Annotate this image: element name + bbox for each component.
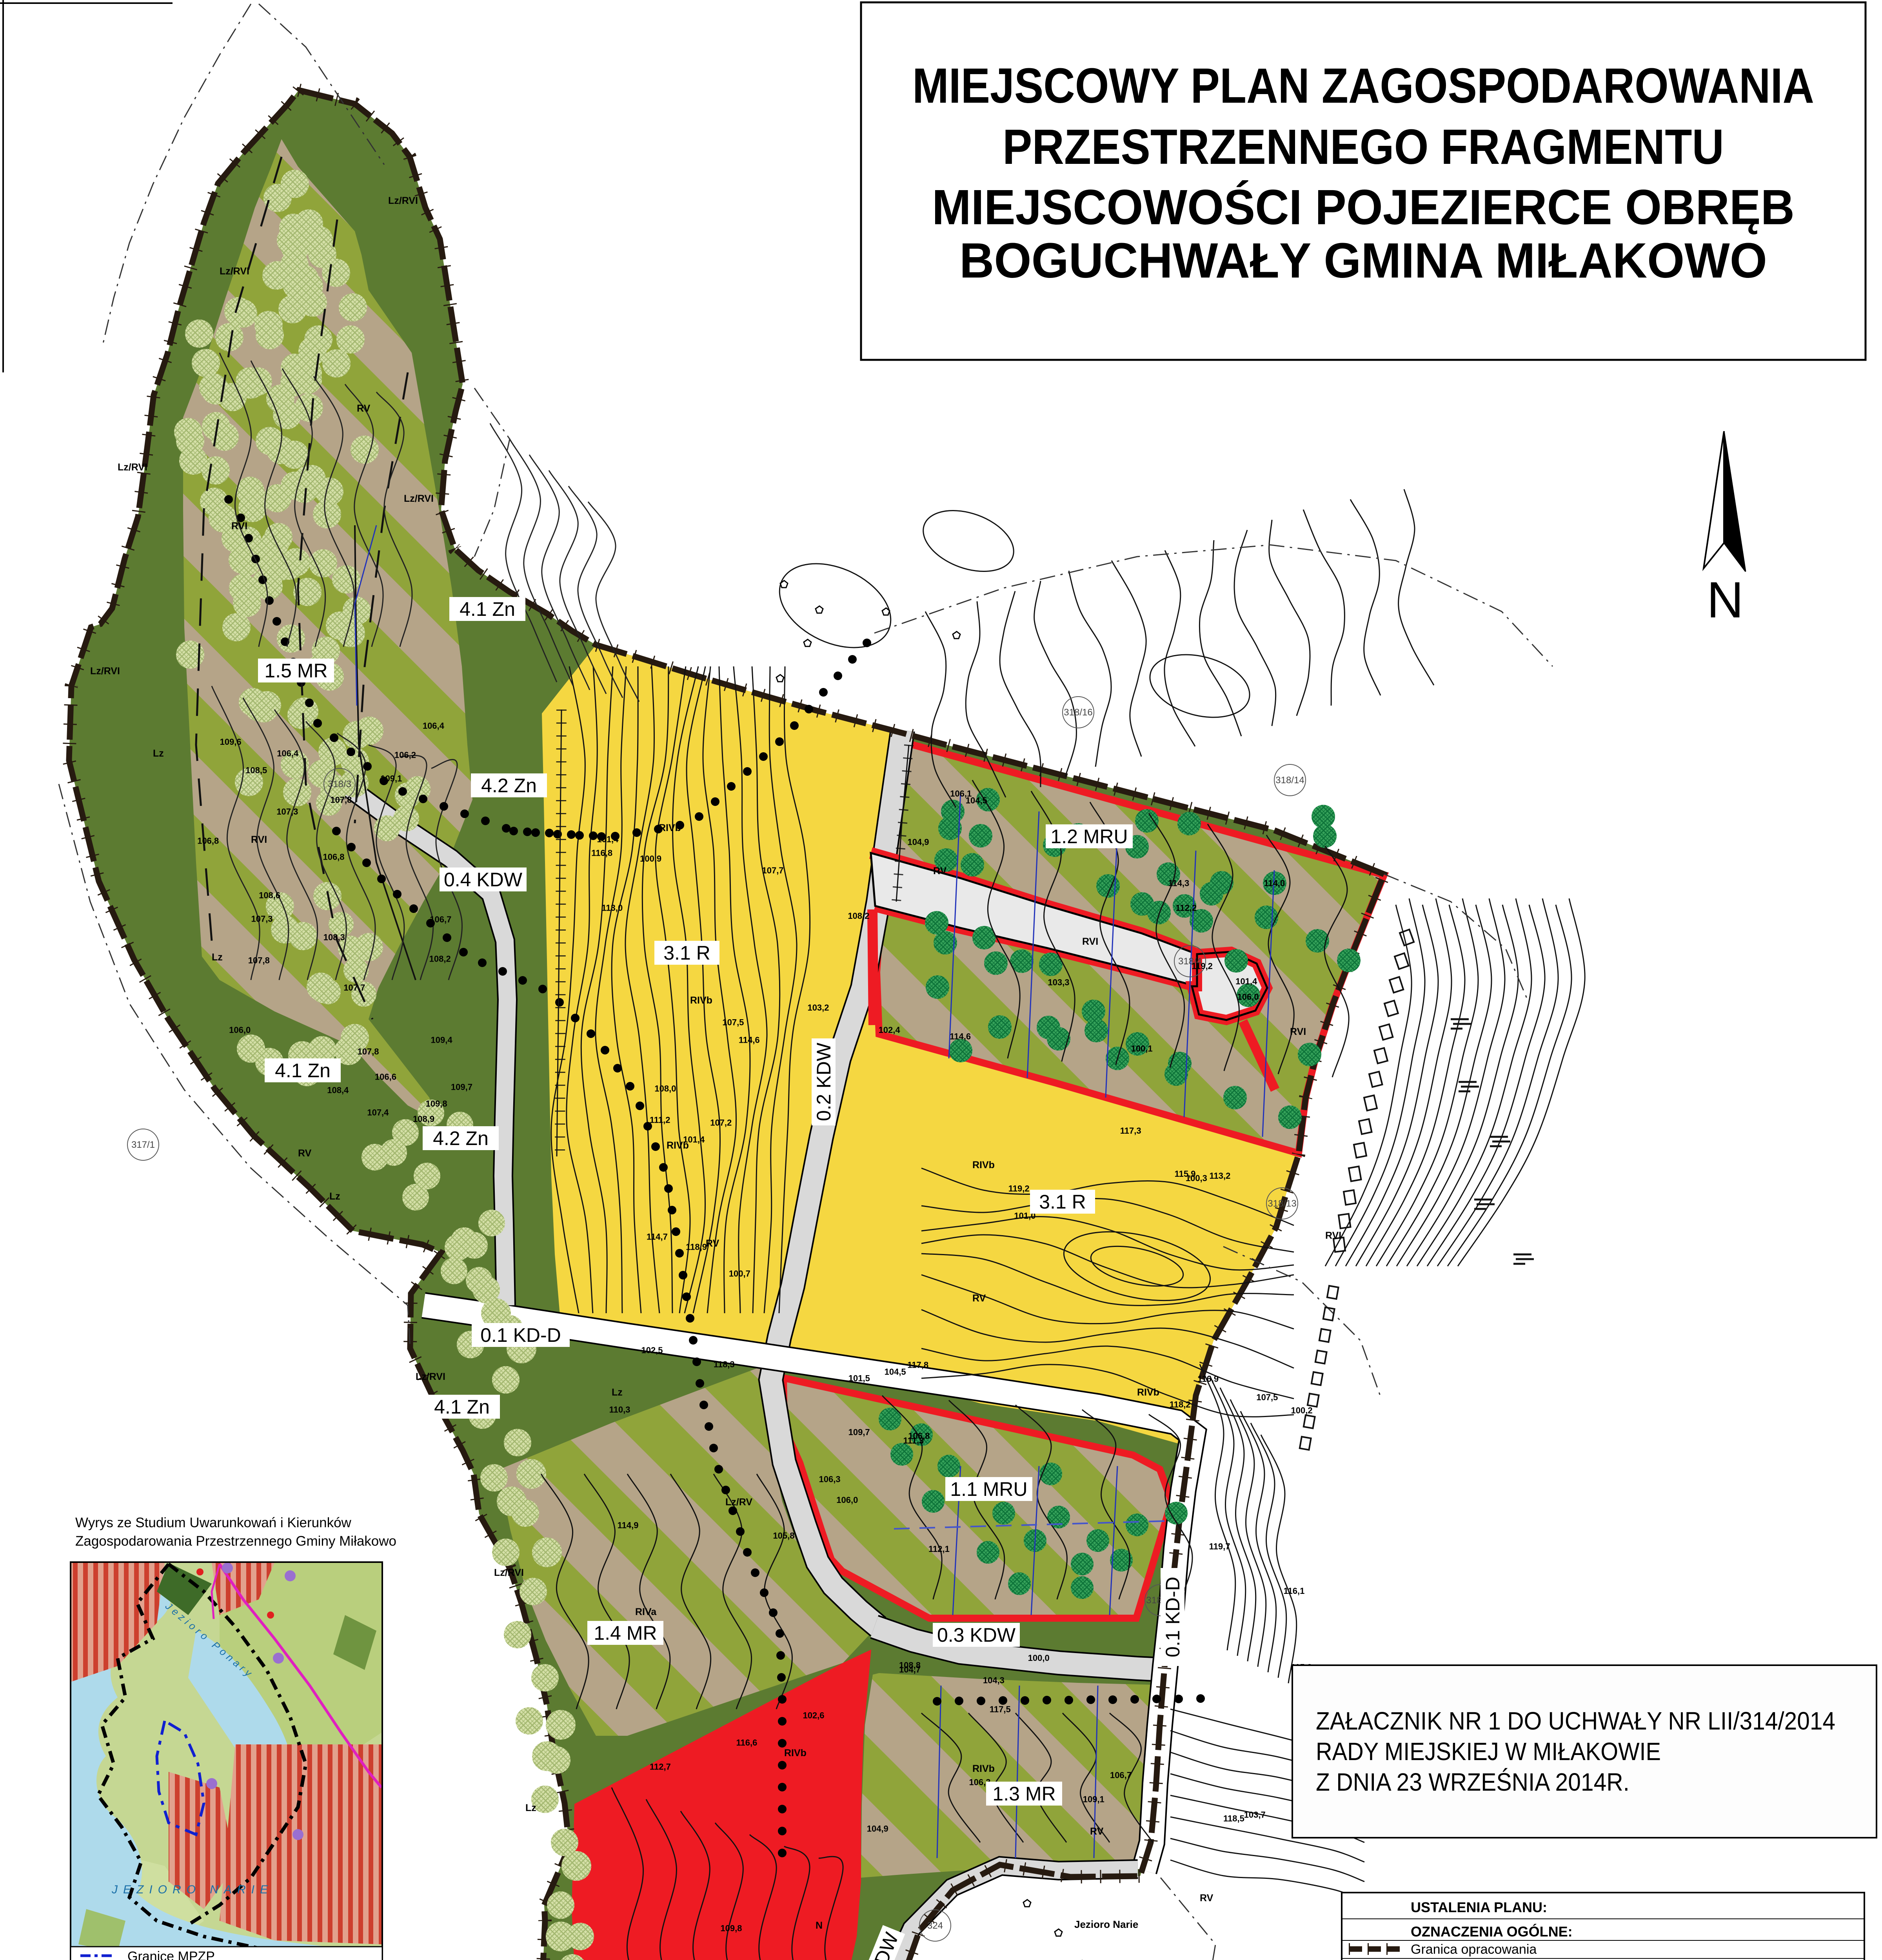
svg-text:Jezioro Narie: Jezioro Narie <box>1074 1918 1138 1930</box>
svg-text:116,6: 116,6 <box>736 1738 757 1748</box>
svg-text:116,9: 116,9 <box>1197 1374 1219 1384</box>
svg-text:114,9: 114,9 <box>618 1521 639 1530</box>
svg-text:116,8: 116,8 <box>591 848 612 858</box>
svg-text:114,6: 114,6 <box>739 1035 760 1045</box>
svg-text:106,7: 106,7 <box>1110 1770 1132 1780</box>
svg-text:106,0: 106,0 <box>836 1495 858 1505</box>
svg-text:318/14: 318/14 <box>1275 775 1304 786</box>
svg-text:Lz: Lz <box>153 748 164 759</box>
svg-text:118,9: 118,9 <box>686 1242 707 1252</box>
svg-text:102,4: 102,4 <box>879 1025 901 1035</box>
svg-text:RIVb: RIVb <box>690 995 712 1006</box>
svg-text:RIVb: RIVb <box>1137 1387 1159 1398</box>
svg-text:0.1 KD-D: 0.1 KD-D <box>480 1324 561 1346</box>
svg-text:0.4 KDW: 0.4 KDW <box>444 869 523 891</box>
svg-text:104,5: 104,5 <box>885 1367 906 1377</box>
svg-text:109,6: 109,6 <box>220 737 242 747</box>
svg-text:106,8: 106,8 <box>197 836 219 846</box>
svg-text:108,4: 108,4 <box>327 1085 349 1095</box>
svg-text:108,0: 108,0 <box>654 1083 676 1093</box>
svg-text:Lz/RVI: Lz/RVI <box>494 1567 524 1578</box>
svg-text:103,7: 103,7 <box>1244 1810 1266 1820</box>
svg-text:1.1 MRU: 1.1 MRU <box>950 1478 1027 1500</box>
svg-text:RIVb: RIVb <box>659 822 681 833</box>
svg-text:106,4: 106,4 <box>277 749 299 759</box>
svg-text:ZAŁACZNIK NR 1 DO UCHWAŁY NR L: ZAŁACZNIK NR 1 DO UCHWAŁY NR LII/314/201… <box>1316 1707 1835 1735</box>
svg-text:106,6: 106,6 <box>375 1072 396 1082</box>
svg-text:107,7: 107,7 <box>343 983 365 993</box>
svg-text:Zagospodarowania Przestrzenneg: Zagospodarowania Przestrzennego Gminy Mi… <box>75 1534 396 1549</box>
svg-text:107,5: 107,5 <box>1256 1392 1278 1402</box>
svg-text:100,7: 100,7 <box>729 1269 750 1279</box>
svg-text:107,8: 107,8 <box>330 795 352 805</box>
svg-text:N: N <box>1707 571 1744 628</box>
svg-text:317/1: 317/1 <box>131 1140 155 1150</box>
svg-text:4.1 Zn: 4.1 Zn <box>434 1396 490 1418</box>
svg-text:109,1: 109,1 <box>380 773 402 783</box>
svg-text:RV: RV <box>972 1293 986 1304</box>
svg-text:112,2: 112,2 <box>1175 903 1197 913</box>
svg-text:3.1 R: 3.1 R <box>1039 1191 1086 1213</box>
svg-text:102,5: 102,5 <box>641 1345 663 1355</box>
svg-text:104,5: 104,5 <box>966 795 987 805</box>
svg-text:108,8: 108,8 <box>899 1661 921 1670</box>
svg-text:109,1: 109,1 <box>1083 1795 1104 1804</box>
svg-text:318/16: 318/16 <box>1064 707 1092 718</box>
svg-text:RV: RV <box>706 1238 719 1249</box>
svg-text:118,3: 118,3 <box>714 1359 735 1369</box>
svg-text:119,2: 119,2 <box>1008 1183 1030 1193</box>
svg-text:102,6: 102,6 <box>803 1710 824 1720</box>
svg-text:107,2: 107,2 <box>710 1118 732 1127</box>
svg-text:101,5: 101,5 <box>848 1373 870 1383</box>
svg-text:Lz: Lz <box>329 1191 340 1202</box>
svg-text:1.5 MR: 1.5 MR <box>264 660 327 682</box>
svg-text:106,3: 106,3 <box>819 1474 841 1484</box>
svg-text:Lz/RV: Lz/RV <box>725 1497 752 1508</box>
svg-text:Lz/RVI: Lz/RVI <box>220 266 249 277</box>
svg-text:RVI: RVI <box>1325 1230 1341 1241</box>
svg-text:RIVb: RIVb <box>972 1160 995 1171</box>
svg-text:106,2: 106,2 <box>394 750 416 760</box>
svg-text:4.2 Zn: 4.2 Zn <box>481 775 537 797</box>
svg-text:1.4 MR: 1.4 MR <box>594 1622 657 1644</box>
svg-text:108,5: 108,5 <box>245 766 267 775</box>
svg-text:3.1 R: 3.1 R <box>663 942 710 964</box>
svg-text:112,7: 112,7 <box>650 1762 671 1772</box>
svg-text:RVI: RVI <box>1082 936 1098 947</box>
svg-text:RV: RV <box>933 866 947 877</box>
svg-text:100,0: 100,0 <box>1028 1653 1050 1663</box>
svg-text:109,7: 109,7 <box>451 1082 472 1092</box>
svg-text:107,5: 107,5 <box>722 1017 744 1027</box>
svg-text:113,2: 113,2 <box>1209 1171 1230 1181</box>
svg-text:103,2: 103,2 <box>807 1003 829 1013</box>
svg-text:Lz/RVI: Lz/RVI <box>118 462 147 473</box>
svg-text:109,8: 109,8 <box>426 1099 447 1109</box>
svg-text:119,7: 119,7 <box>1209 1542 1230 1552</box>
svg-text:318/13: 318/13 <box>1268 1198 1296 1209</box>
svg-text:0.3 KDW: 0.3 KDW <box>937 1624 1016 1646</box>
svg-text:RVI: RVI <box>1290 1026 1306 1037</box>
svg-text:318/3: 318/3 <box>328 779 351 789</box>
svg-text:108,9: 108,9 <box>413 1114 434 1124</box>
svg-text:117,8: 117,8 <box>907 1360 928 1370</box>
svg-text:117,5: 117,5 <box>990 1704 1011 1714</box>
svg-text:Lz/RVI: Lz/RVI <box>388 195 418 206</box>
svg-text:RV: RV <box>1090 1826 1104 1837</box>
svg-text:114,7: 114,7 <box>647 1232 668 1241</box>
svg-text:PRZESTRZENNEGO FRAGMENTU: PRZESTRZENNEGO FRAGMENTU <box>1003 119 1724 174</box>
svg-text:100,9: 100,9 <box>640 854 661 864</box>
svg-text:112,1: 112,1 <box>928 1544 950 1554</box>
svg-text:107,3: 107,3 <box>251 914 273 924</box>
svg-text:107,3: 107,3 <box>276 807 298 817</box>
svg-text:107,7: 107,7 <box>762 866 783 875</box>
svg-text:RIVa: RIVa <box>635 1606 657 1617</box>
svg-text:4.1 Zn: 4.1 Zn <box>460 598 515 620</box>
svg-text:106,8: 106,8 <box>908 1431 930 1441</box>
svg-text:106,4: 106,4 <box>423 721 445 731</box>
svg-text:Lz: Lz <box>612 1387 623 1398</box>
svg-text:103,3: 103,3 <box>1048 977 1069 987</box>
svg-text:RV: RV <box>298 1148 312 1159</box>
svg-text:100,1: 100,1 <box>1131 1044 1153 1054</box>
svg-text:108,6: 108,6 <box>259 891 280 900</box>
svg-text:104,9: 104,9 <box>907 837 929 847</box>
svg-text:107,8: 107,8 <box>248 956 270 965</box>
svg-text:100,2: 100,2 <box>1291 1406 1313 1416</box>
svg-text:USTALENIA PLANU:: USTALENIA PLANU: <box>1411 1899 1547 1915</box>
svg-text:107,4: 107,4 <box>367 1108 389 1118</box>
svg-text:113,0: 113,0 <box>601 903 623 913</box>
svg-text:104,3: 104,3 <box>983 1675 1005 1685</box>
svg-text:110,3: 110,3 <box>609 1405 630 1415</box>
svg-text:0.2 KDW: 0.2 KDW <box>813 1042 835 1121</box>
svg-text:N: N <box>816 1920 823 1931</box>
svg-text:105,8: 105,8 <box>773 1531 794 1541</box>
svg-text:Z DNIA 23 WRZEŚNIA 2014R.: Z DNIA 23 WRZEŚNIA 2014R. <box>1316 1768 1629 1796</box>
svg-text:Lz/RVI: Lz/RVI <box>90 666 120 677</box>
svg-text:RADY MIEJSKIEJ W MIŁAKOWIE: RADY MIEJSKIEJ W MIŁAKOWIE <box>1316 1737 1661 1766</box>
svg-text:119,2: 119,2 <box>1192 961 1213 971</box>
svg-text:Lz/RVI: Lz/RVI <box>404 493 434 504</box>
svg-text:118,5: 118,5 <box>1223 1813 1244 1823</box>
svg-text:107,8: 107,8 <box>357 1047 379 1056</box>
svg-text:RVI: RVI <box>231 521 247 532</box>
svg-text:MIEJSCOWOŚCI POJEZIERCE OBRĘB: MIEJSCOWOŚCI POJEZIERCE OBRĘB <box>932 180 1795 235</box>
svg-text:117,3: 117,3 <box>1120 1126 1141 1136</box>
svg-text:114,3: 114,3 <box>1168 878 1189 888</box>
svg-text:Granice MPZP: Granice MPZP <box>127 1949 215 1960</box>
svg-text:RIVb: RIVb <box>784 1748 807 1759</box>
svg-text:109,8: 109,8 <box>720 1924 742 1933</box>
svg-text:OZNACZENIA OGÓLNE:: OZNACZENIA OGÓLNE: <box>1411 1923 1573 1940</box>
svg-text:1.3 MR: 1.3 MR <box>992 1783 1055 1805</box>
svg-text:101,4: 101,4 <box>1235 976 1257 986</box>
svg-text:106,7: 106,7 <box>430 915 451 924</box>
svg-text:109,7: 109,7 <box>848 1427 870 1437</box>
svg-text:Lz: Lz <box>525 1802 536 1813</box>
svg-text:109,4: 109,4 <box>431 1035 453 1045</box>
svg-text:4.1 Zn: 4.1 Zn <box>275 1060 331 1082</box>
svg-text:RIVb: RIVb <box>972 1763 995 1774</box>
svg-text:4.2 Zn: 4.2 Zn <box>433 1127 489 1149</box>
svg-text:108,2: 108,2 <box>429 954 451 964</box>
svg-text:114,0: 114,0 <box>1264 878 1285 888</box>
svg-text:RV: RV <box>1200 1893 1213 1904</box>
svg-text:1.2 MRU: 1.2 MRU <box>1050 826 1128 848</box>
svg-text:108,2: 108,2 <box>848 911 869 921</box>
svg-text:JEZIORO NARIE: JEZIORO NARIE <box>111 1883 273 1896</box>
svg-text:BOGUCHWAŁY GMINA MIŁAKOWO: BOGUCHWAŁY GMINA MIŁAKOWO <box>959 233 1767 288</box>
svg-text:104,9: 104,9 <box>867 1824 888 1834</box>
svg-text:324: 324 <box>927 1920 943 1931</box>
svg-text:116,1: 116,1 <box>1284 1586 1305 1596</box>
svg-text:RV: RV <box>357 403 371 414</box>
svg-text:101,4: 101,4 <box>597 835 619 844</box>
svg-text:101,4: 101,4 <box>683 1135 705 1145</box>
svg-text:115,9: 115,9 <box>1175 1169 1196 1179</box>
svg-text:106,0: 106,0 <box>229 1025 251 1035</box>
svg-text:106,0: 106,0 <box>1237 992 1259 1002</box>
svg-text:108,3: 108,3 <box>323 933 345 942</box>
svg-text:0.1 KD-D: 0.1 KD-D <box>1162 1577 1184 1657</box>
svg-text:118,2: 118,2 <box>1170 1399 1191 1409</box>
svg-text:Lz: Lz <box>212 952 223 963</box>
svg-text:106,8: 106,8 <box>323 852 344 862</box>
svg-text:Granica opracowania: Granica opracowania <box>1411 1942 1537 1957</box>
svg-text:Wyrys ze Studium Uwarunkowań i: Wyrys ze Studium Uwarunkowań i Kierunków <box>75 1515 352 1530</box>
svg-text:111,2: 111,2 <box>650 1115 670 1125</box>
svg-text:MIEJSCOWY PLAN ZAGOSPODAROWANI: MIEJSCOWY PLAN ZAGOSPODAROWANIA <box>912 58 1814 113</box>
svg-text:114,6: 114,6 <box>950 1032 971 1042</box>
svg-text:RVI: RVI <box>251 834 267 845</box>
svg-text:Lz/RVI: Lz/RVI <box>416 1371 445 1382</box>
